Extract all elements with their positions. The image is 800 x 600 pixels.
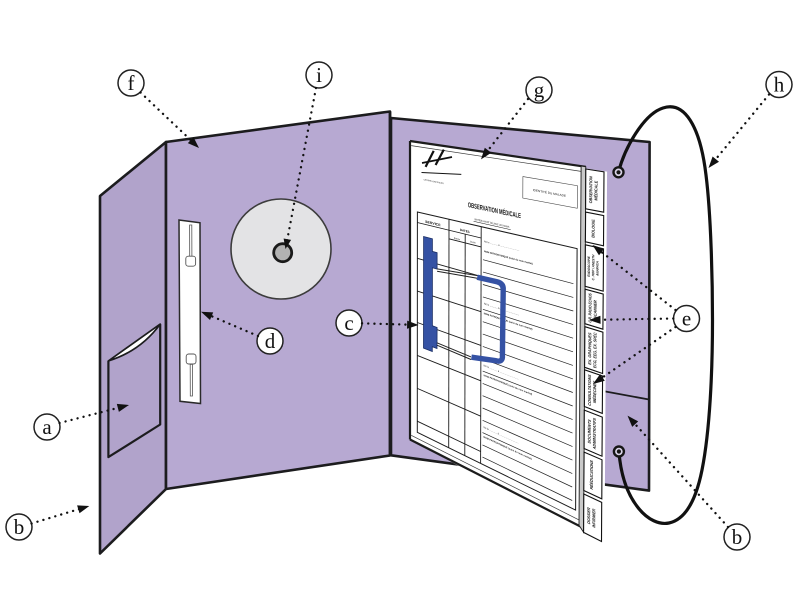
svg-text:SCANNER: SCANNER	[592, 299, 597, 319]
svg-text:g: g	[534, 78, 545, 102]
svg-text:MÉDICALE: MÉDICALE	[593, 180, 598, 201]
svg-text:i: i	[316, 63, 322, 87]
svg-text:ADMINISTRATIFS: ADMINISTRATIFS	[592, 417, 597, 450]
svg-text:ECG, EEG, EX. SPÉC: ECG, EEG, EX. SPÉC	[592, 332, 597, 369]
svg-text:c: c	[344, 311, 353, 335]
svg-text:h: h	[774, 72, 785, 96]
svg-text:b: b	[14, 515, 25, 539]
svg-text:e: e	[682, 306, 691, 330]
svg-text:INFIRMIER: INFIRMIER	[591, 507, 596, 528]
svg-text:b: b	[732, 525, 743, 549]
svg-text:BIOLOGIE: BIOLOGIE	[590, 218, 595, 238]
svg-text:ANAPATH: ANAPATH	[596, 260, 600, 276]
svg-text:f: f	[128, 71, 135, 95]
svg-text:a: a	[42, 415, 52, 439]
svg-text:RÉÉDUCATIONS: RÉÉDUCATIONS	[589, 459, 594, 491]
svg-text:d: d	[265, 329, 276, 353]
